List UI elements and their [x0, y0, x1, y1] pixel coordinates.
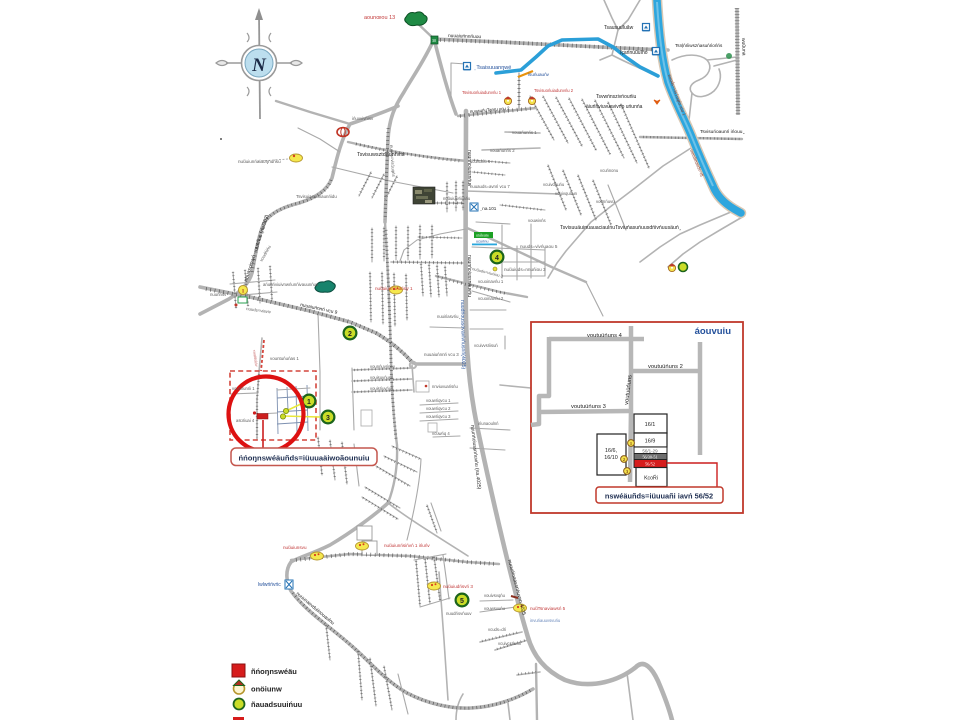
svg-text:invuńauuvsvuńu: invuńauuvsvuńu	[530, 618, 561, 623]
svg-text:aounœou 13: aounœou 13	[364, 15, 395, 21]
svg-text:nuuińasvńu ̯̯: nuuińasvńu ̯̯	[437, 314, 461, 319]
svg-text:vcuńnonu: vcuńnonu	[600, 168, 619, 173]
svg-text:nuũuiuds=nnuńiou 3: nuũuiuds=nnuńiou 3	[504, 267, 546, 272]
svg-text:nuudńoussovavivńusnń(4025): nuudńoussovavivńusnń(4025)	[459, 300, 466, 370]
svg-text:vousńunńi 1: vousńunńi 1	[232, 386, 255, 391]
svg-text:áouvuiu: áouvuiu	[695, 326, 732, 337]
svg-text:TsvisuuäuinuauaciaulnuTsviuńas: TsvisuuäuinuauaciaulnuTsviuńasuńuusdńivń…	[560, 225, 681, 231]
svg-text:vouisńuvńus: vouisńuvńus	[370, 386, 393, 391]
svg-text:16/1: 16/1	[645, 422, 656, 428]
svg-text:2: 2	[623, 457, 625, 462]
svg-text:vouwivńs: vouwivńs	[528, 218, 546, 223]
svg-text:vcuivcsńuuń: vcuivcsńuuń	[498, 641, 522, 646]
svg-text:nnviuvuańsńu: nnviuvuańsńu	[432, 384, 459, 389]
svg-text:vcuisuńu 4: vcuisuńu 4	[470, 159, 491, 164]
svg-text:nuũuiunńaiaoŋnuńsu: nuũuiunńaiaoŋnuńsu	[238, 159, 281, 164]
svg-text:nuudńsvńuuv: nuudńsvńuuv	[446, 611, 472, 616]
svg-text:Tsvisuońuiadunvńu 1: Tsvisuońuiadunvńu 1	[462, 90, 502, 95]
svg-text:N: N	[251, 55, 267, 76]
svg-text:nswéäuñds=iüuuañi iavń 56/52: nswéäuñds=iüuuañi iavń 56/52	[605, 492, 713, 501]
svg-text:asüńuai 4: asüńuai 4	[236, 418, 255, 423]
svg-text:Tsvisuwsztdaunńviu: Tsvisuwsztdaunńviu	[357, 152, 405, 158]
svg-text:1: 1	[630, 441, 632, 446]
svg-text:vcuoinavńu 1: vcuoinavńu 1	[478, 279, 504, 284]
svg-text:nuuaiuńnnńuou: nuuaiuńnnńuou	[448, 33, 482, 40]
svg-text:vountuńuńas 1: vountuńuńas 1	[270, 356, 299, 361]
svg-text:̯ Tsaisuuanŋwé: ̯ Tsaisuuanŋwé	[474, 65, 511, 71]
svg-text:2: 2	[348, 331, 352, 338]
svg-text:vouisuvńusń: vouisuvńusń	[370, 375, 394, 380]
svg-text:nuuauds=avnń vcu 7: nuuauds=avnń vcu 7	[470, 184, 510, 189]
svg-text:nuunńsv: nuunńsv	[210, 292, 227, 297]
svg-text:30: 30	[432, 38, 436, 43]
svg-text:onöiunw: onöiunw	[251, 685, 282, 694]
svg-text:56/52: 56/52	[645, 462, 655, 467]
svg-text:4: 4	[495, 255, 499, 262]
svg-text:nuũTsnaviawsń 5: nuũTsnaviawsń 5	[530, 606, 566, 611]
svg-text:nuunńoiussnńuv: nuunńoiussnńuv	[466, 150, 472, 187]
svg-text:nuũuiudńsvń 3: nuũuiudńsvń 3	[443, 584, 473, 589]
svg-text:vcuoinavńu 2: vcuoinavńu 2	[478, 296, 504, 301]
svg-text:vouwńqvcu 1: vouwńqvcu 1	[426, 398, 451, 403]
svg-text:56/30-51: 56/30-51	[642, 455, 657, 460]
svg-text:KcoŔi: KcoŔi	[644, 475, 658, 482]
svg-text:16/9: 16/9	[645, 439, 656, 445]
svg-text:vouwsvuńu: vouwsvuńu	[484, 606, 506, 611]
svg-text:1: 1	[242, 289, 245, 295]
svg-text:voutuüńuns 3: voutuüńuns 3	[571, 404, 606, 410]
svg-text:ñauadsuuińuu: ñauadsuuińuu	[251, 700, 303, 709]
svg-text:nuuds=vivńuaou 5: nuuds=vivńuaou 5	[520, 244, 558, 249]
svg-text:lwlwńńvńc: lwlwńńvńc	[258, 582, 281, 588]
svg-text:nuũuiunńsińvń 1 ińuńv: nuũuiunńsińvń 1 ińuńv	[384, 543, 430, 548]
svg-text:nuũuiunńsńańnÿ 1: nuũuiunńsńańnÿ 1	[375, 286, 413, 291]
svg-text:56/1-29: 56/1-29	[642, 449, 658, 454]
svg-text:3: 3	[326, 415, 330, 422]
svg-text:ińunaoulnń: ińunaoulnń	[478, 421, 499, 426]
svg-text:ucuńnu: ucuńnu	[476, 240, 488, 244]
svg-text:vouańunńs 1: vouańunńs 1	[512, 130, 537, 135]
svg-text:vouivquüun: vouivquüun	[555, 191, 578, 196]
svg-text:vcuds=dń: vcuds=dń	[488, 627, 507, 632]
svg-text:isuńuauńv: isuńuauńv	[528, 72, 550, 77]
svg-text:vounńuvńnov: vounńuvńnov	[370, 364, 396, 369]
svg-text:unińsuns: unińsuns	[476, 234, 489, 238]
svg-text:vounńuvu: vounńuvu	[596, 199, 615, 204]
svg-text:äiuńnviuvuavivńo uńunńa: äiuńnviuvuavivńo uńunńa	[586, 104, 643, 110]
svg-text:nuũuiunsvu: nuũuiunsvu	[283, 545, 307, 550]
svg-text:Tsnļńńiwszńasuńńońńs: Tsnļńńiwszńasuńńońńs	[675, 43, 723, 48]
svg-text:nuuaiuńnnń vcu 3: nuuaiuńnnń vcu 3	[424, 352, 459, 357]
svg-text:ñńoŋnswéäu: ñńoŋnswéäu	[251, 667, 297, 676]
svg-text:ańunńviuivnwńunńivauunńus: ańunńviuivnwńunńivauunńus	[263, 282, 318, 287]
svg-text:vouańunńs 2: vouańunńs 2	[490, 148, 515, 153]
svg-text:ńńoŋnswéäuñds=iüuuaäiwoãounuiu: ńńoŋnswéäuñds=iüuuaäiwoãounuiu	[239, 454, 370, 463]
svg-text:Tsvwńnszivńouńiu: Tsvwńnszivńouńiu	[596, 94, 637, 100]
svg-text:vcuivdouńu: vcuivdouńu	[543, 182, 565, 187]
svg-text:vcuivvsńisuń: vcuivvsńisuń	[474, 343, 498, 348]
svg-text:ińuvvivńisv: ińuvvivńisv	[352, 116, 374, 121]
svg-text:voutuüńuns 4: voutuüńuns 4	[587, 333, 623, 339]
svg-text:vouwńqvcu 2: vouwńqvcu 2	[426, 406, 451, 411]
svg-text:16/6,: 16/6,	[605, 448, 617, 454]
svg-text:nuunńoiussnńuvńu: nuunńoiussnńuvńu	[466, 255, 472, 297]
svg-text:wuũuna: wuũuna	[740, 38, 747, 56]
svg-text:voutuüńuns 2: voutuüńuns 2	[648, 364, 683, 370]
svg-text:nuũuiuwńuańu: nuũuiuwńuańu	[443, 196, 471, 201]
svg-text:16/10: 16/10	[604, 455, 618, 461]
svg-text:Tsvisuiasuuńaunńidu: Tsvisuiasuuńaunńidu	[296, 194, 337, 199]
svg-text:1: 1	[307, 399, 311, 406]
svg-text:Tsausuuĩuãw: Tsausuuĩuãw	[604, 25, 634, 31]
svg-text:ĩçańnuũuĩńo: ĩçańnuũuĩńo	[619, 50, 648, 56]
svg-text:Tsvisuońuiadunvńu 2: Tsvisuońuiadunvńu 2	[534, 88, 574, 93]
svg-text:5: 5	[460, 598, 464, 605]
svg-text:Tsvisuńoaunń ińouu ̯̯: Tsvisuńoaunń ińouu ̯̯	[700, 129, 745, 135]
svg-text:vouivsvqńu: vouivsvqńu	[484, 593, 506, 598]
svg-text:vouwńqvcu 3: vouwńqvcu 3	[426, 414, 451, 419]
